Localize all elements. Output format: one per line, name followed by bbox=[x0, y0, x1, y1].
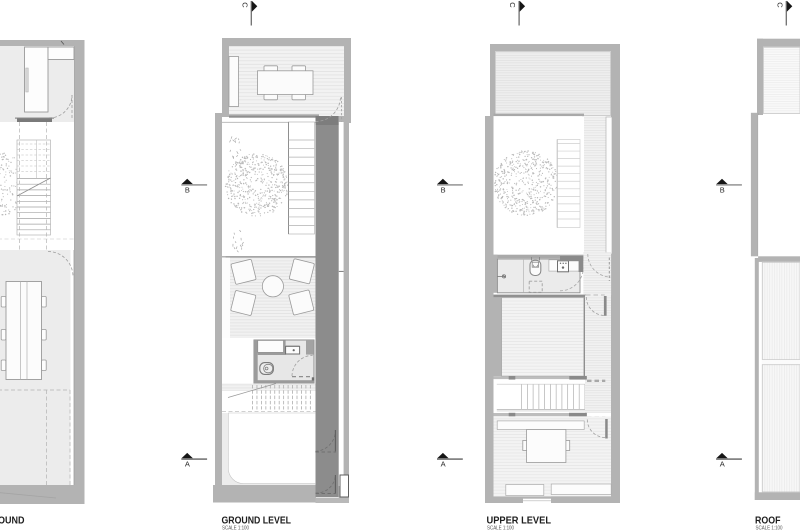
svg-text:B: B bbox=[720, 185, 725, 194]
svg-text:SCALE 1:100: SCALE 1:100 bbox=[487, 525, 514, 530]
svg-text:C: C bbox=[775, 2, 784, 8]
svg-text:A: A bbox=[185, 460, 190, 469]
svg-text:SCALE 1:100: SCALE 1:100 bbox=[222, 525, 249, 530]
svg-text:B: B bbox=[441, 185, 446, 194]
svg-text:C: C bbox=[508, 2, 517, 8]
svg-text:A: A bbox=[441, 460, 446, 469]
svg-text:C: C bbox=[240, 2, 249, 8]
svg-text:B: B bbox=[185, 185, 190, 194]
svg-text:OUND: OUND bbox=[0, 515, 25, 527]
svg-text:SCALE 1:100: SCALE 1:100 bbox=[756, 525, 783, 530]
svg-text:A: A bbox=[720, 460, 725, 469]
